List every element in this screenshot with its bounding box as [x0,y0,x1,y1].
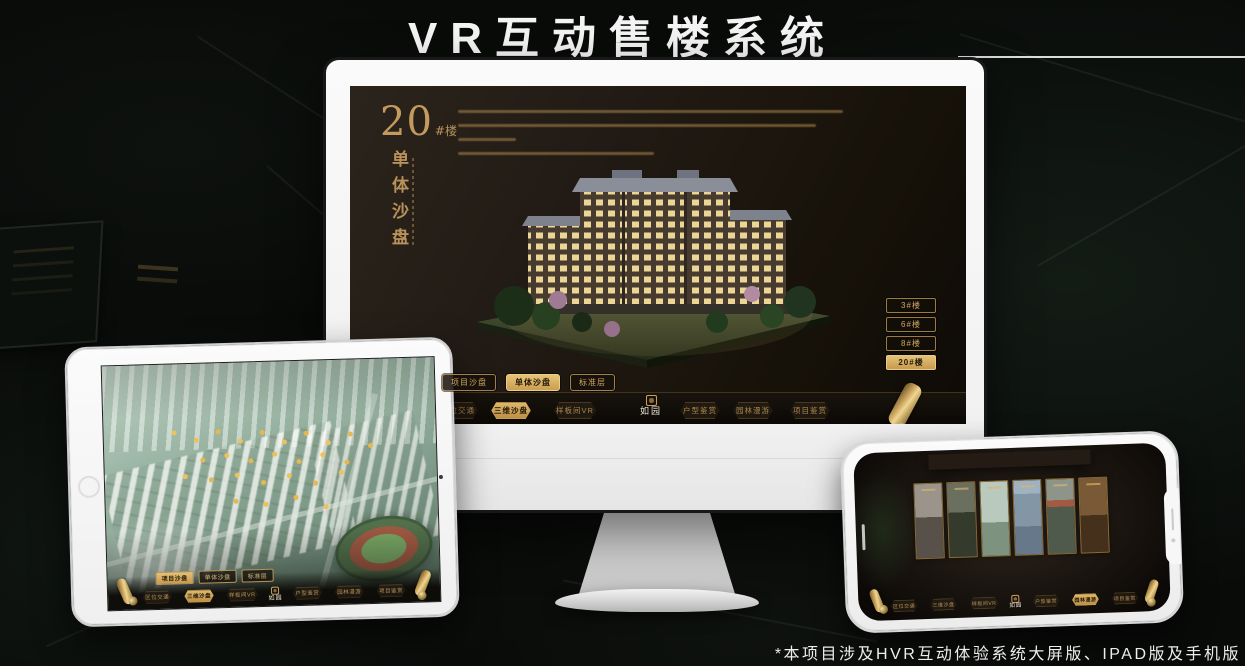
nav-item-showroom-vr[interactable]: 样板间VR [550,402,600,419]
brand-logo: 如园 [1009,594,1023,609]
nav-item-3d-sandbox[interactable]: 三维沙盘 [488,402,534,419]
nav-item-showroom-vr[interactable]: 样板间VR [224,588,261,602]
phone-bottom-nav: 区位交通 三维沙盘 样板间VR 如园 户型鉴赏 园林漫游 项目鉴赏 [888,590,1140,615]
scene-panel[interactable] [946,481,978,558]
seal-icon [1011,595,1019,603]
description-line [458,124,816,127]
phone-notch [1164,488,1182,564]
nav-item-showroom-vr[interactable]: 样板间VR [967,596,1001,609]
nav-item-garden-tour[interactable]: 园林漫游 [730,402,776,419]
poster-stage: VR互动售楼系统 20#楼 单体沙盘 [0,0,1245,666]
gate-beam [928,449,1091,470]
nav-item-unit-plans[interactable]: 户型鉴赏 [290,586,324,600]
nav-item-location[interactable]: 区位交通 [140,590,174,604]
tab-standard-floor[interactable]: 标准层 [570,374,615,391]
description-line [458,152,654,155]
scene-panel-gallery [913,477,1110,560]
tab-standard-floor[interactable]: 标准层 [241,569,273,583]
tablet-body: 项目沙盘 单体沙盘 标准层 区位交通 三维沙盘 样板间VR 如园 户型鉴赏 园林… [64,337,460,628]
monitor-stand-base [555,589,759,612]
nav-item-project-gallery[interactable]: 项目鉴赏 [787,402,833,419]
floor-button-3[interactable]: 3#楼 [886,298,936,313]
brand-logo-text: 如园 [640,408,662,417]
building-render [462,164,842,369]
floor-button-6[interactable]: 6#楼 [886,317,936,332]
tab-project-sandbox[interactable]: 项目沙盘 [155,571,193,585]
tablet-screen: 项目沙盘 单体沙盘 标准层 区位交通 三维沙盘 样板间VR 如园 户型鉴赏 园林… [101,356,442,611]
nav-item-project-gallery[interactable]: 项目鉴赏 [374,583,408,597]
monitor-stand-neck [578,505,736,597]
description-line [458,138,516,141]
footnote-text: *本项目涉及HVR互动体验系统大屏版、IPAD版及手机版 [775,640,1241,664]
floor-button-20[interactable]: 20#楼 [886,355,936,370]
subtitle-english-caption [412,158,414,246]
nav-item-location[interactable]: 区位交通 [888,599,919,612]
scene-panel[interactable] [1012,479,1044,556]
tablet-device: 项目沙盘 单体沙盘 标准层 区位交通 三维沙盘 样板间VR 如园 户型鉴赏 园林… [64,337,460,628]
scene-panel[interactable] [979,480,1011,557]
tab-project-sandbox[interactable]: 项目沙盘 [442,374,496,391]
scroll-icon[interactable] [868,588,885,614]
tab-single-sandbox[interactable]: 单体沙盘 [506,374,560,391]
brand-logo-text: 如园 [268,595,282,601]
phone-screen: 区位交通 三维沙盘 样板间VR 如园 户型鉴赏 园林漫游 项目鉴赏 [853,443,1171,622]
nav-item-unit-plans[interactable]: 户型鉴赏 [1030,594,1061,607]
sandbox-tab-group: 项目沙盘 单体沙盘 标准层 [442,374,615,391]
home-button[interactable] [78,476,101,499]
monitor-screen: 20#楼 单体沙盘 [350,86,966,424]
phone-body: 区位交通 三维沙盘 样板间VR 如园 户型鉴赏 园林漫游 项目鉴赏 [840,430,1184,634]
scene-panel[interactable] [1045,478,1077,555]
block-number: 20 [380,99,433,145]
description-paragraph [458,110,843,166]
block-number-heading: 20#楼 [380,102,457,142]
camera-icon [1171,538,1175,542]
screen-subtitle: 单体沙盘 [386,150,411,254]
scroll-icon[interactable] [1144,578,1160,604]
block-number-suffix: #楼 [435,124,457,138]
seal-icon [271,586,279,594]
tab-single-sandbox[interactable]: 单体沙盘 [198,570,236,584]
nav-item-3d-sandbox[interactable]: 三维沙盘 [928,598,959,611]
nav-item-garden-tour[interactable]: 园林漫游 [1070,593,1101,606]
speaker-icon [1171,508,1174,530]
nav-item-unit-plans[interactable]: 户型鉴赏 [677,402,723,419]
floor-button-group: 3#楼 6#楼 8#楼 20#楼 [886,298,936,374]
nav-item-garden-tour[interactable]: 园林漫游 [332,585,366,599]
brand-logo-text: 如园 [1009,603,1022,609]
camera-icon [439,475,443,479]
floor-button-8[interactable]: 8#楼 [886,336,936,351]
scene-panel[interactable] [1078,477,1110,554]
description-line [458,110,843,113]
brand-logo: 如园 [268,586,282,601]
scene-panel[interactable] [913,482,945,559]
background-plaque [0,220,103,349]
nav-item-project-gallery[interactable]: 项目鉴赏 [1109,592,1140,605]
phone-device: 区位交通 三维沙盘 样板间VR 如园 户型鉴赏 园林漫游 项目鉴赏 [840,430,1184,634]
seal-icon [645,395,656,406]
nav-item-3d-sandbox[interactable]: 三维沙盘 [182,589,216,603]
brand-logo: 如园 [640,395,662,417]
